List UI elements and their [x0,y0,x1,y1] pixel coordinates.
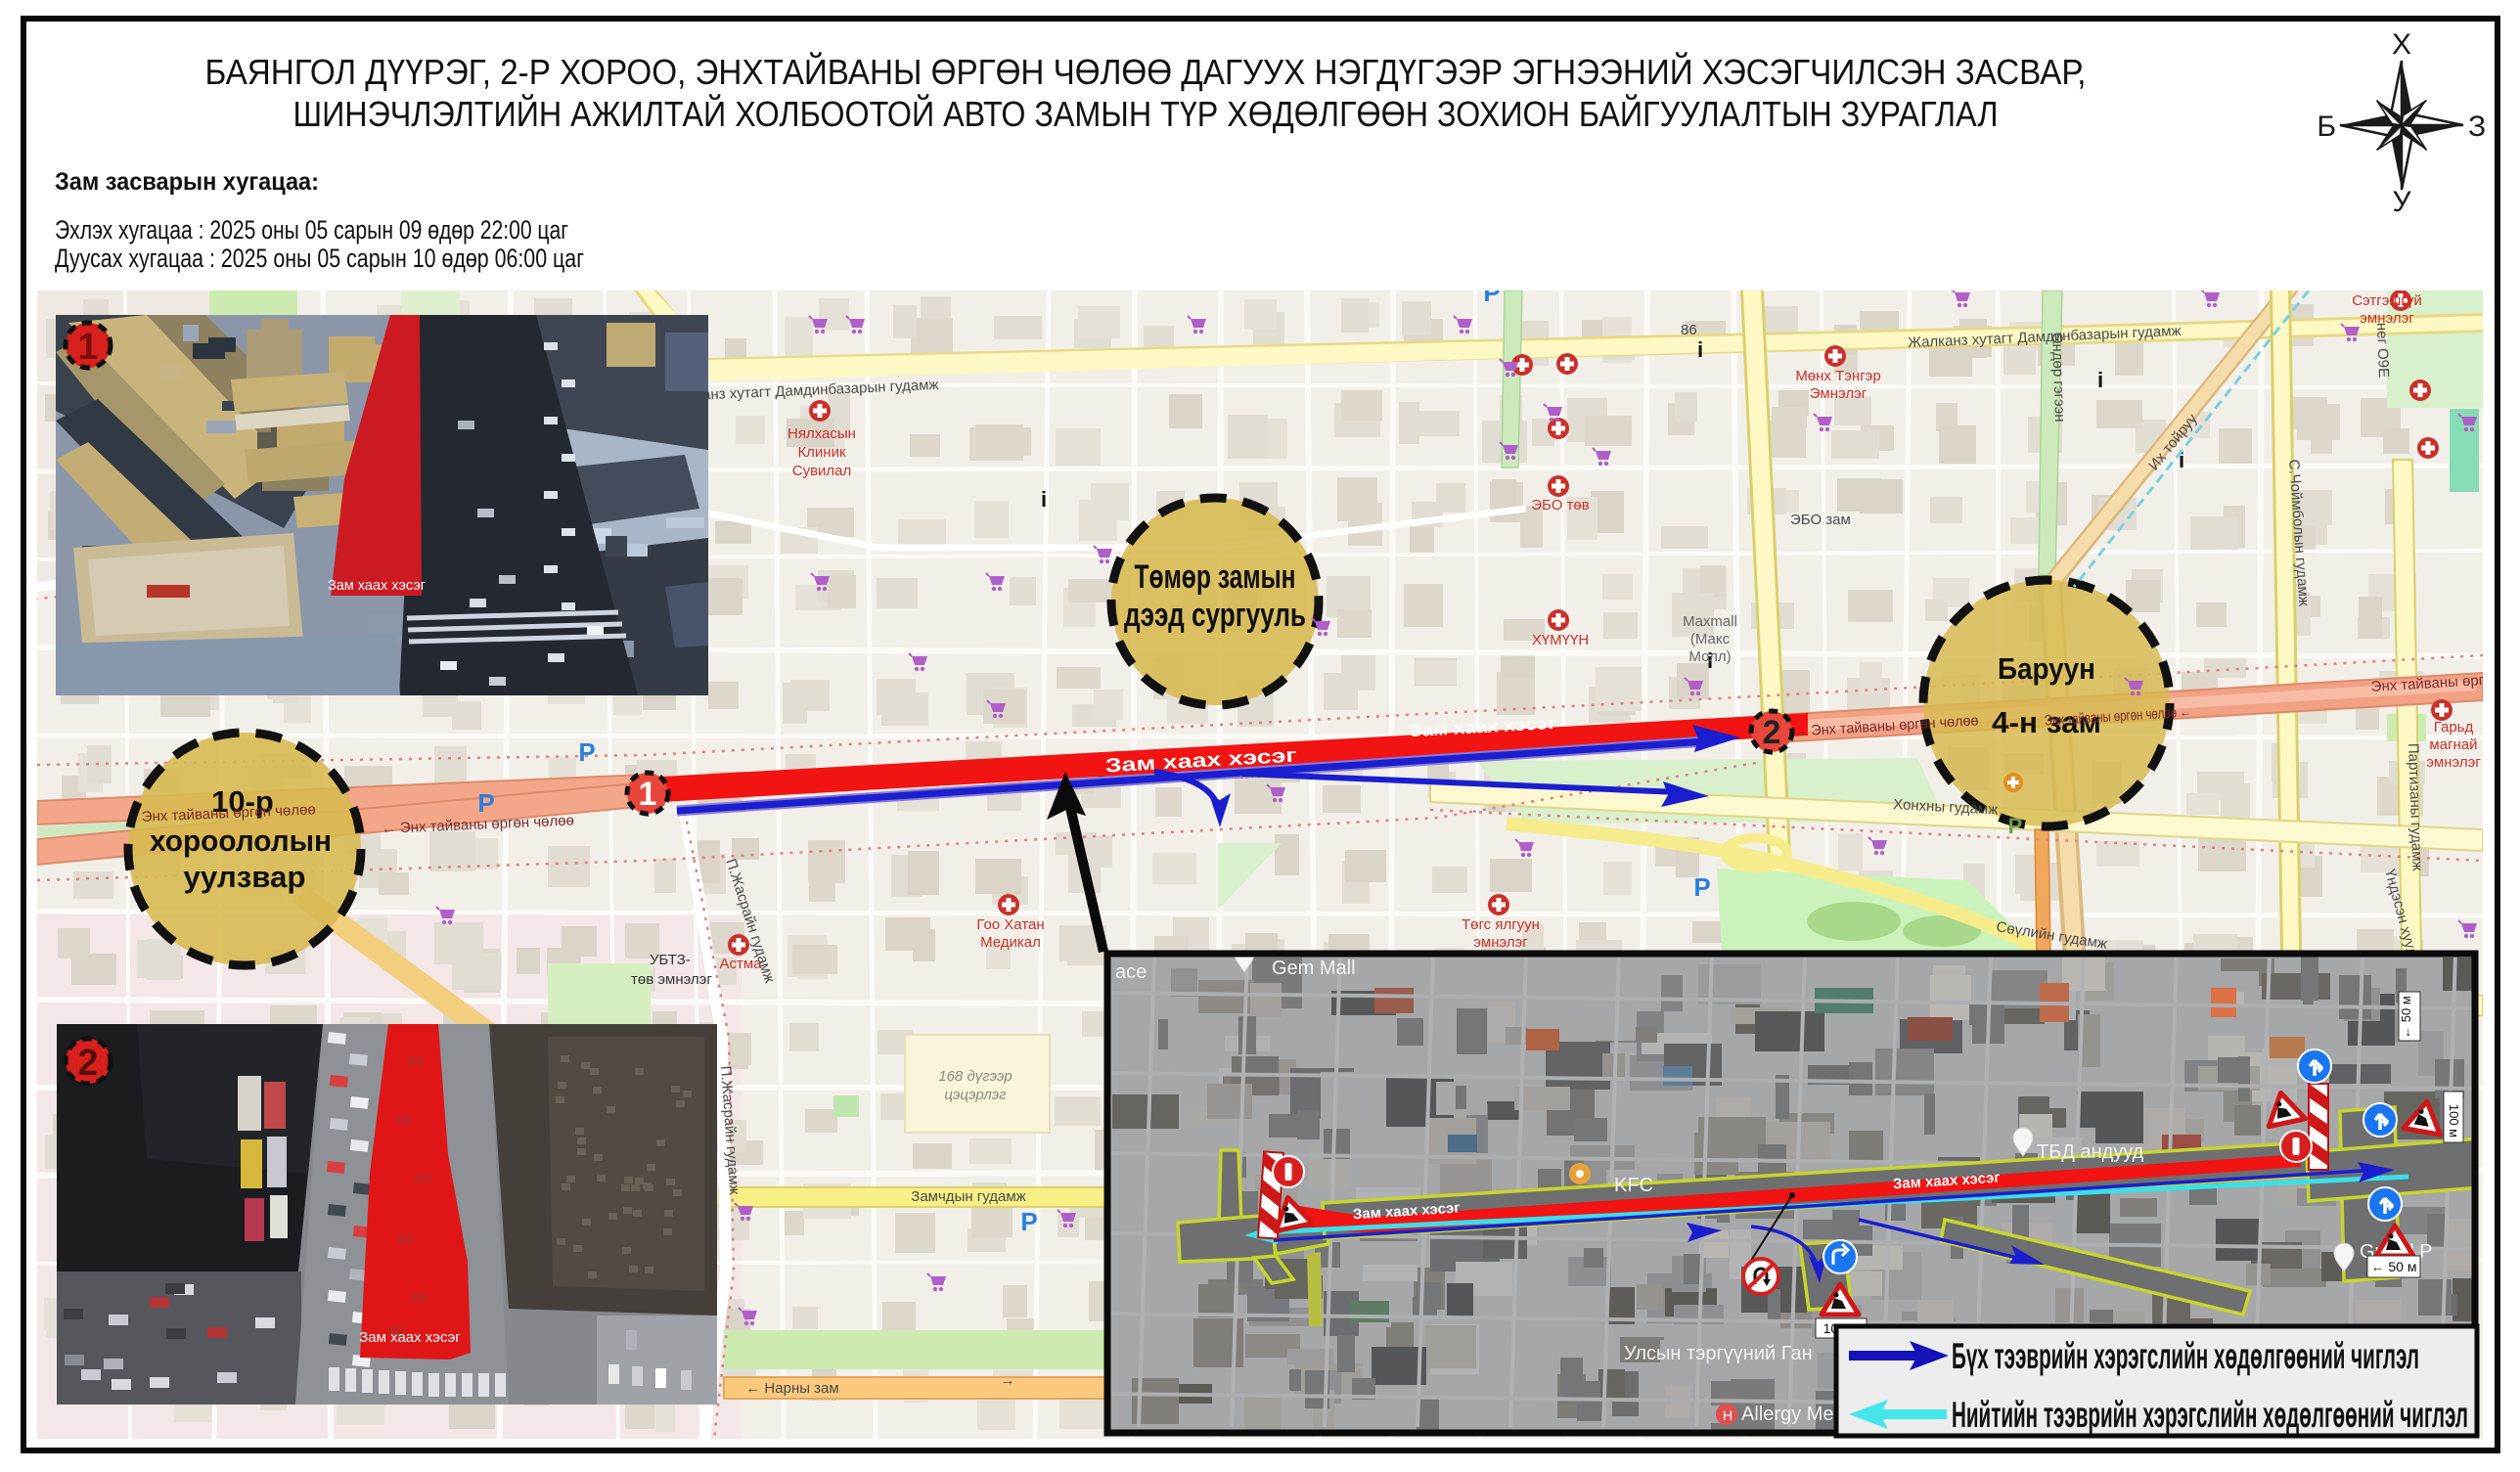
svg-text:З: З [2468,111,2486,143]
svg-text:Молл): Молл) [1688,648,1731,665]
svg-text:Гоо Хатан: Гоо Хатан [976,916,1044,933]
svg-text:нег О9Е: нег О9Е [2373,323,2392,379]
svg-text:KFC: KFC [1614,1175,1653,1196]
svg-text:дээд сургууль: дээд сургууль [1124,597,1306,634]
svg-text:Эмнэлэг: Эмнэлэг [1810,385,1867,402]
svg-text:Сэтгэшгүй: Сэтгэшгүй [2352,292,2422,309]
svg-text:Сувилал: Сувилал [792,463,852,479]
svg-text:Зам засварын хугацаа:: Зам засварын хугацаа: [55,168,319,196]
svg-text:← 50 м: ← 50 м [2399,996,2413,1039]
svg-text:H: H [1723,1407,1732,1423]
svg-text:Х: Х [2392,28,2411,61]
svg-text:← Нарны зам: ← Нарны зам [745,1380,838,1397]
svg-text:эмнэлэг: эмнэлэг [2426,754,2481,771]
svg-text:Эхлэх хугацаа : 2025 оны 05 са: Эхлэх хугацаа : 2025 оны 05 сарын 09 өдө… [55,215,568,245]
svg-text:Улсын тэргүүний Ган: Улсын тэргүүний Ган [1624,1343,1813,1364]
svg-text:P: P [2008,814,2023,838]
svg-text:Мөнх Тэнгэр: Мөнх Тэнгэр [1795,368,1880,384]
svg-text:Гарьд: Гарьд [2434,719,2474,736]
svg-text:цэцэрлэг: цэцэрлэг [944,1087,1007,1103]
svg-text:→: → [1001,1372,1015,1389]
svg-text:У: У [2392,186,2411,218]
svg-text:Баруун: Баруун [1998,651,2095,686]
svg-text:Нялхасын: Нялхасын [787,425,856,442]
svg-text:Maxmall: Maxmall [1683,613,1737,630]
svg-text:1: 1 [639,776,657,813]
svg-text:168 дүгээр: 168 дүгээр [938,1068,1012,1085]
svg-text:ТБД андууд: ТБД андууд [2037,1141,2144,1163]
svg-text:ШИНЭЧЛЭЛТИЙН АЖИЛТАЙ ХОЛБООТОЙ: ШИНЭЧЛЭЛТИЙН АЖИЛТАЙ ХОЛБООТОЙ АВТО ЗАМЫ… [293,93,1999,134]
svg-text:Замчдын гудамж: Замчдын гудамж [911,1188,1025,1205]
svg-text:ХҮМҮҮН: ХҮМҮҮН [1532,632,1589,648]
svg-text:100 м: 100 м [2447,1104,2461,1137]
svg-text:магнай: магнай [2429,736,2477,753]
svg-text:2: 2 [1763,714,1781,751]
svg-text:Зам хаах хэсэг: Зам хаах хэсэг [328,578,426,594]
svg-text:уулзвар: уулзвар [184,860,306,894]
svg-text:Зам хаах хэсэг: Зам хаах хэсэг [359,1329,461,1346]
svg-text:Медикал: Медикал [980,934,1041,951]
svg-text:Төгс ялгуун: Төгс ялгуун [1462,916,1540,933]
svg-text:Клиник: Клиник [797,444,846,461]
svg-text:УБТЗ-: УБТЗ- [650,952,691,968]
svg-text:← 50 м: ← 50 м [2371,1259,2417,1274]
svg-text:Б: Б [2317,111,2336,143]
svg-text:ЭБО төв: ЭБО төв [1531,497,1590,513]
svg-text:БАЯНГОЛ ДҮҮРЭГ, 2-Р ХОРОО, ЭНХ: БАЯНГОЛ ДҮҮРЭГ, 2-Р ХОРОО, ЭНХТАЙВАНЫ ӨР… [205,51,2087,92]
svg-text:(Макс: (Макс [1690,631,1731,647]
svg-text:1: 1 [77,327,98,368]
svg-text:төв эмнэлэг: төв эмнэлэг [631,971,712,988]
svg-text:86: 86 [1681,322,1697,338]
svg-text:Төмөр замын: Төмөр замын [1135,558,1296,596]
svg-text:Нийтийн тээврийн хэрэгслийн хө: Нийтийн тээврийн хэрэгслийн хөдөлгөөний … [1952,1395,2468,1435]
svg-text:хороололын: хороололын [150,824,332,858]
svg-text:Бүх тээврийн хэрэгслийн хөдөлг: Бүх тээврийн хэрэгслийн хөдөлгөөний чигл… [1952,1336,2419,1376]
svg-text:Gem Mall: Gem Mall [1272,958,1356,979]
svg-text:ace: ace [1115,961,1147,983]
svg-text:ЭБО зам: ЭБО зам [1790,512,1851,528]
svg-text:2: 2 [77,1043,98,1084]
svg-text:Өндөр гэгээн: Өндөр гэгээн [2048,333,2068,423]
svg-text:Дуусах хугацаа : 2025 оны 05 с: Дуусах хугацаа : 2025 оны 05 сарын 10 өд… [55,244,584,273]
svg-text:эмнэлэг: эмнэлэг [1473,934,1528,951]
